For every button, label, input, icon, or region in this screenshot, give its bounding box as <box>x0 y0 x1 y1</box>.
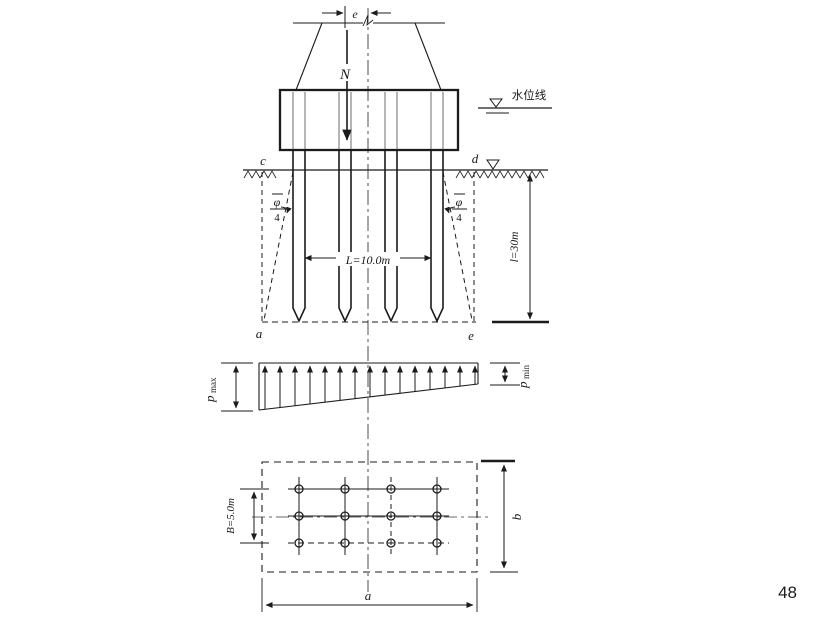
pmax-dimension: p max <box>202 363 253 411</box>
pmax-subscript: max <box>208 377 218 393</box>
plan-a-label: a <box>365 588 372 603</box>
point-a-label: a <box>256 326 263 341</box>
pile <box>431 150 443 321</box>
pile-foundation-diagram: e N 水位线 c d <box>0 0 827 621</box>
pile <box>339 150 351 321</box>
load-label: N <box>339 67 351 83</box>
spread-angle-left: φ 4 <box>270 194 287 224</box>
svg-text:4: 4 <box>456 212 462 224</box>
pressure-diagram <box>259 363 478 410</box>
eccentricity-label: e <box>352 7 358 21</box>
load-spread-boundaries <box>262 172 476 322</box>
depth-label: l=30m <box>509 232 521 263</box>
svg-text:4: 4 <box>274 212 280 224</box>
textbook-figure-page: e N 水位线 c d <box>0 0 827 621</box>
svg-text:φ: φ <box>456 195 463 209</box>
depth-dimension: l=30m <box>492 175 549 322</box>
plan-B-label: B=5.0m <box>225 498 237 534</box>
pier-right-slant <box>415 23 441 90</box>
pressure-arrows <box>265 366 475 409</box>
plan-a-dimension: a <box>262 578 477 612</box>
water-triangle-icon <box>490 99 502 107</box>
point-c-label: c <box>260 153 266 168</box>
pier-outline <box>293 15 445 90</box>
plan-b-label: b <box>509 513 524 520</box>
svg-text:φ: φ <box>274 195 281 209</box>
pier-left-slant <box>296 23 322 90</box>
pmin-dimension: p min <box>490 363 531 389</box>
page-number: 48 <box>778 583 797 603</box>
spread-angle-right: φ 4 <box>449 194 467 224</box>
plan-b-dimension: b <box>481 461 524 572</box>
ground-water-triangle-icon <box>487 160 499 169</box>
ground-hatch-left <box>244 171 276 178</box>
pile <box>293 150 305 321</box>
pile <box>385 150 397 321</box>
water-level-label: 水位线 <box>512 88 547 102</box>
pile-width-label: L=10.0m <box>345 253 391 267</box>
plan-grid-lines <box>288 477 449 555</box>
point-d-label: d <box>472 151 479 166</box>
pmin-subscript: min <box>521 364 531 379</box>
pmax-symbol: p <box>202 395 217 403</box>
ground-hatch-right <box>456 171 544 178</box>
point-e-label: e <box>468 328 474 343</box>
pmin-symbol: p <box>515 381 530 389</box>
